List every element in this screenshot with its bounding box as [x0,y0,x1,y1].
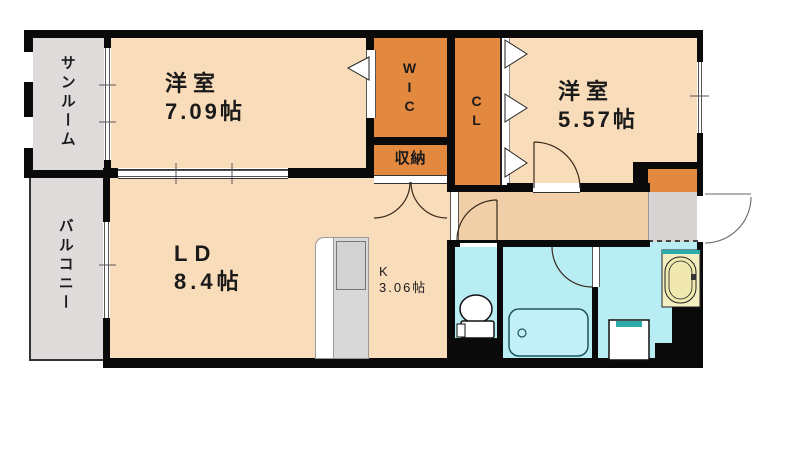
washing-machine-pan-icon [609,320,649,360]
bedroom1-size: 7.09帖 [165,98,245,126]
bedroom1-name: 洋室 [165,70,245,98]
kitchen-size: 3.06帖 [379,280,427,296]
bedroom2-size: 5.57帖 [558,106,638,134]
storage-door-right-arc-icon [411,182,447,218]
kitchen-label: K 3.06帖 [379,264,427,297]
closet-fold-triangle-3-icon [505,148,527,177]
floor-plan: サンルーム バルコニー 洋室 7.09帖 洋室 5.57帖 LD 8.4帖 K … [0,0,800,449]
living-size: 8.4帖 [174,268,243,296]
bedroom2-name: 洋室 [558,78,638,106]
wic-label: WIC [400,60,418,122]
washbasin-icon [662,250,700,307]
balcony-label: バルコニー [55,218,74,330]
sunroom-label: サンルーム [57,55,76,165]
bath-door-arc-icon [552,247,592,287]
bedroom2-door-arc-icon [534,142,580,188]
storage-label: 収納 [374,150,447,169]
entrance-door-swing-icon [705,194,751,243]
living-name: LD [174,240,243,268]
bathtub-icon [509,309,588,356]
wic-door-triangle-icon [348,57,369,80]
closet-label: CL [467,93,485,133]
storage-door-left-arc-icon [374,182,410,218]
closet-fold-triangle-2-icon [505,94,527,122]
toilet-icon [457,295,494,338]
kitchen-name: K [379,264,427,280]
toilet-door-arc-icon [457,200,497,240]
closet-fold-triangle-1-icon [505,40,527,68]
living-label: LD 8.4帖 [174,240,243,295]
bedroom1-label: 洋室 7.09帖 [165,70,245,125]
bedroom2-label: 洋室 5.57帖 [558,78,638,133]
